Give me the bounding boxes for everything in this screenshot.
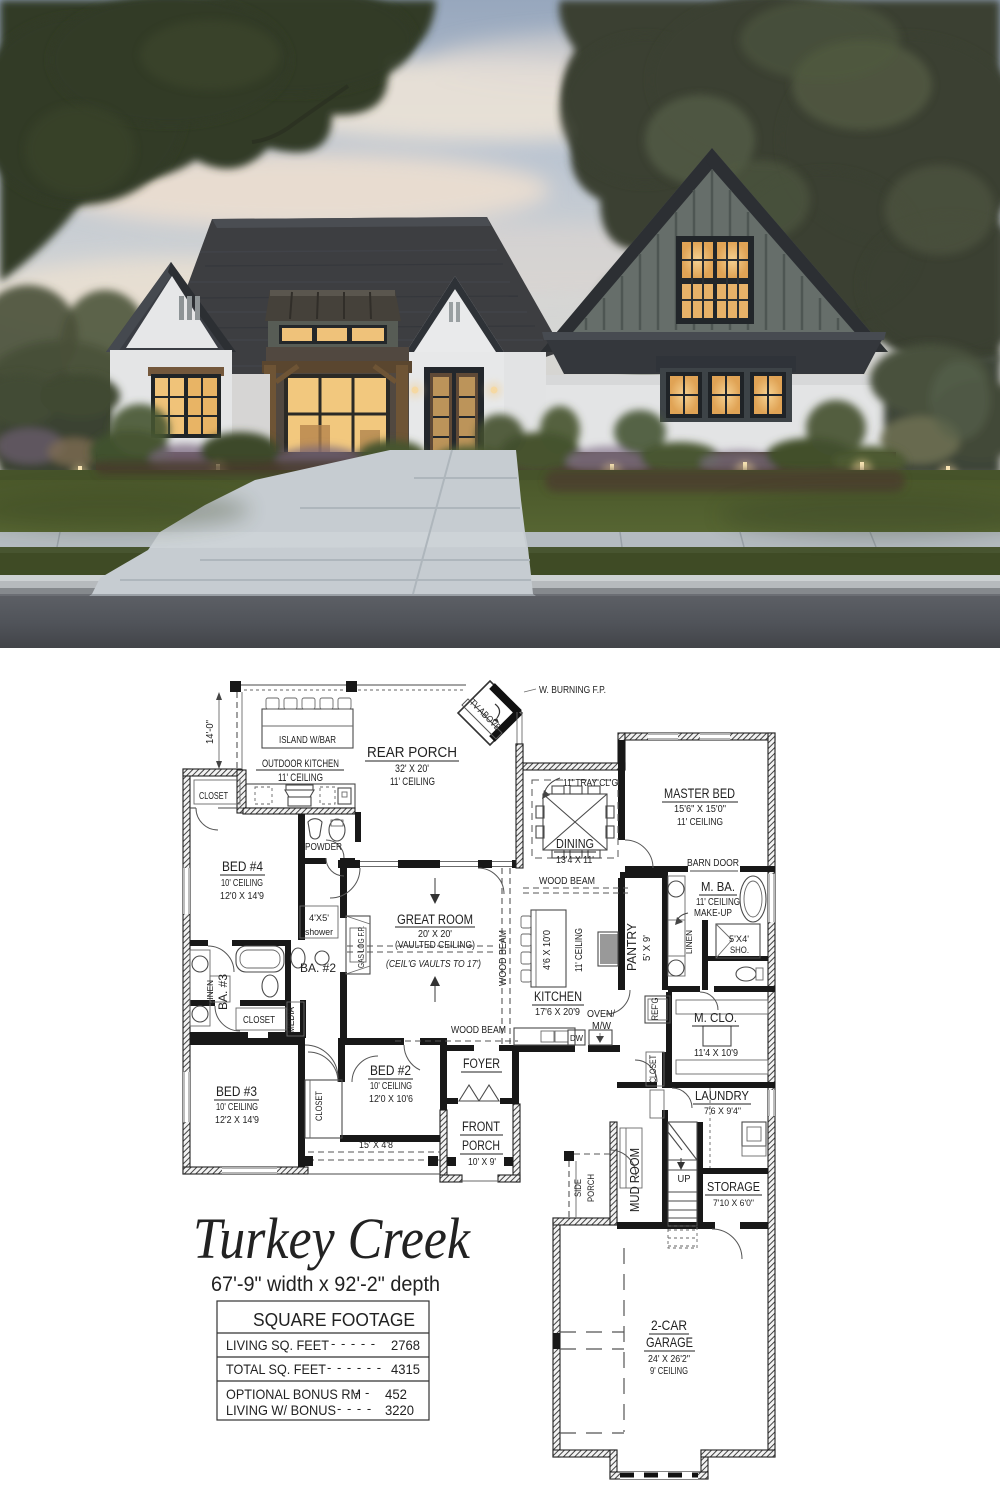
svg-text:FRONT: FRONT — [462, 1119, 500, 1134]
svg-text:OUTDOOR KITCHEN: OUTDOOR KITCHEN — [262, 758, 339, 770]
svg-text:15'6" X 15'0": 15'6" X 15'0" — [674, 804, 726, 815]
svg-text:BED #4: BED #4 — [222, 859, 263, 874]
svg-text:- - - - -: - - - - - — [331, 1336, 376, 1351]
svg-text:BARN DOOR: BARN DOOR — [687, 858, 739, 869]
svg-text:DW: DW — [570, 1033, 583, 1043]
svg-text:LAUNDRY: LAUNDRY — [695, 1089, 750, 1103]
svg-text:32' X 20': 32' X 20' — [395, 763, 429, 775]
svg-text:Turkey Creek: Turkey Creek — [193, 1206, 471, 1271]
svg-text:WOOD BEAM: WOOD BEAM — [498, 930, 509, 986]
svg-text:OPTIONAL BONUS RM: OPTIONAL BONUS RM — [226, 1386, 361, 1402]
svg-text:BA. #2: BA. #2 — [300, 961, 336, 975]
svg-text:M/W: M/W — [592, 1021, 612, 1032]
svg-text:GREAT ROOM: GREAT ROOM — [397, 912, 473, 927]
svg-text:PANTRY: PANTRY — [624, 923, 639, 971]
svg-text:11' TRAY CL'G: 11' TRAY CL'G — [563, 778, 618, 789]
svg-text:2-CAR: 2-CAR — [651, 1317, 687, 1333]
svg-text:WOOD BEAM: WOOD BEAM — [451, 1025, 506, 1036]
svg-text:10' CEILING: 10' CEILING — [221, 878, 263, 889]
svg-text:W. BURNING F.P.: W. BURNING F.P. — [539, 685, 606, 696]
svg-text:12'0 X 14'9: 12'0 X 14'9 — [220, 891, 264, 902]
svg-text:17'6 X 20'9: 17'6 X 20'9 — [535, 1007, 580, 1018]
svg-text:(VAULTED CEILING): (VAULTED CEILING) — [395, 940, 475, 951]
svg-text:7'10 X 6'0": 7'10 X 6'0" — [713, 1198, 754, 1209]
svg-text:KITCHEN: KITCHEN — [534, 989, 582, 1004]
svg-text:LINEN: LINEN — [205, 980, 215, 1004]
svg-text:CLOSET: CLOSET — [199, 790, 228, 802]
svg-text:MEDIA: MEDIA — [286, 1007, 296, 1033]
svg-text:24' X 26'2": 24' X 26'2" — [648, 1354, 690, 1365]
svg-text:- -: - - — [355, 1385, 370, 1400]
svg-text:- - - -: - - - - — [337, 1401, 372, 1416]
svg-text:12'0 X 10'6: 12'0 X 10'6 — [369, 1094, 413, 1105]
svg-text:REF'G: REF'G — [650, 998, 660, 1021]
svg-text:WOOD BEAM: WOOD BEAM — [539, 876, 595, 887]
svg-text:CLOSET: CLOSET — [648, 1055, 658, 1083]
svg-text:13'4 X 11': 13'4 X 11' — [556, 855, 594, 866]
svg-text:SIDE: SIDE — [573, 1179, 584, 1197]
svg-text:MASTER BED: MASTER BED — [664, 785, 735, 801]
svg-text:SQUARE FOOTAGE: SQUARE FOOTAGE — [253, 1310, 415, 1330]
svg-text:67'-9" width x 92'-2" depth: 67'-9" width x 92'-2" depth — [211, 1273, 440, 1296]
svg-text:4'6 X 10'0: 4'6 X 10'0 — [542, 930, 553, 970]
svg-text:5'X4': 5'X4' — [729, 934, 749, 945]
svg-text:4'X5': 4'X5' — [309, 913, 329, 924]
svg-text:5' X 9': 5' X 9' — [642, 935, 653, 961]
svg-text:10' CEILING: 10' CEILING — [370, 1081, 412, 1092]
svg-text:MUD ROOM: MUD ROOM — [627, 1148, 642, 1212]
svg-text:FOYER: FOYER — [463, 1056, 500, 1071]
svg-text:20' X 20': 20' X 20' — [418, 929, 452, 940]
svg-text:UP: UP — [678, 1173, 691, 1185]
svg-text:PORCH: PORCH — [462, 1138, 500, 1153]
svg-text:LIVING SQ. FEET: LIVING SQ. FEET — [226, 1337, 329, 1353]
svg-text:11' CEILING: 11' CEILING — [696, 897, 740, 908]
svg-text:BA. #3: BA. #3 — [216, 974, 230, 1010]
svg-text:11'4 X 10'9: 11'4 X 10'9 — [694, 1048, 738, 1059]
svg-text:BED #2: BED #2 — [370, 1063, 411, 1078]
svg-text:10' X 9': 10' X 9' — [468, 1157, 496, 1168]
svg-text:BED #3: BED #3 — [216, 1084, 257, 1099]
svg-text:M. CLO.: M. CLO. — [694, 1010, 737, 1025]
svg-text:GARAGE: GARAGE — [646, 1334, 693, 1350]
svg-text:11' CEILING: 11' CEILING — [677, 817, 723, 828]
svg-text:DINING: DINING — [556, 836, 594, 851]
svg-text:- - - - - -: - - - - - - — [327, 1360, 382, 1375]
svg-text:(CEIL'G VAULTS TO 17'): (CEIL'G VAULTS TO 17') — [386, 958, 481, 970]
svg-text:shower: shower — [305, 927, 333, 938]
svg-text:CLOSET: CLOSET — [243, 1015, 275, 1026]
svg-text:REAR PORCH: REAR PORCH — [367, 744, 457, 761]
svg-text:M. BA.: M. BA. — [701, 880, 735, 894]
svg-text:12'2 X 14'9: 12'2 X 14'9 — [215, 1115, 259, 1126]
svg-text:4315: 4315 — [391, 1361, 420, 1377]
svg-text:452: 452 — [385, 1386, 407, 1402]
svg-text:POWDER: POWDER — [305, 841, 342, 853]
svg-text:15' X 4'8: 15' X 4'8 — [359, 1140, 393, 1151]
svg-text:PORCH: PORCH — [586, 1174, 597, 1202]
svg-text:TOTAL SQ. FEET: TOTAL SQ. FEET — [226, 1361, 326, 1377]
svg-text:2768: 2768 — [391, 1337, 420, 1353]
svg-text:CLOSET: CLOSET — [314, 1091, 325, 1121]
svg-text:STORAGE: STORAGE — [707, 1180, 760, 1194]
svg-text:9' CEILING: 9' CEILING — [650, 1366, 688, 1377]
svg-text:11' CEILING: 11' CEILING — [390, 776, 435, 788]
svg-text:14'-0": 14'-0" — [205, 720, 216, 744]
svg-text:OVEN/: OVEN/ — [587, 1009, 615, 1020]
svg-text:MAKE-UP: MAKE-UP — [694, 908, 732, 919]
svg-text:ISLAND W/BAR: ISLAND W/BAR — [279, 734, 336, 746]
svg-text:7'6 X 9'4": 7'6 X 9'4" — [704, 1106, 741, 1117]
svg-text:11' CEILING: 11' CEILING — [574, 928, 585, 972]
svg-text:GAS LOG F.P.: GAS LOG F.P. — [356, 926, 366, 968]
svg-text:LINEN: LINEN — [684, 930, 694, 954]
svg-text:3220: 3220 — [385, 1402, 414, 1418]
svg-text:SHO.: SHO. — [730, 945, 749, 956]
svg-text:LIVING W/ BONUS: LIVING W/ BONUS — [226, 1402, 336, 1418]
svg-text:10' CEILING: 10' CEILING — [216, 1102, 258, 1113]
svg-text:11' CEILING: 11' CEILING — [278, 772, 323, 784]
